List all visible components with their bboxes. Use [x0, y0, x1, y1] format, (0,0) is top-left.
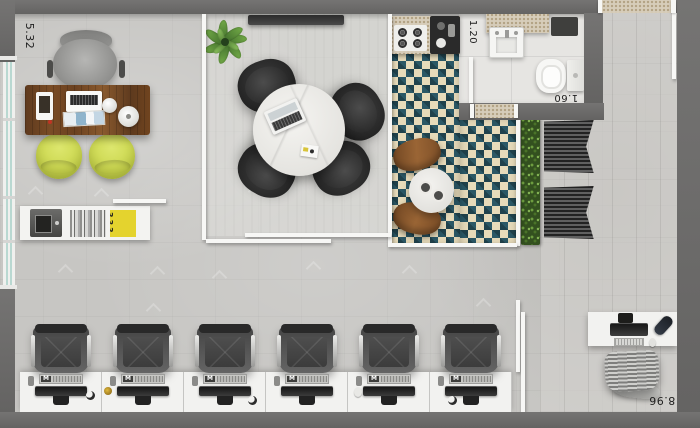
entrance-door-jamb	[671, 0, 676, 13]
wall-left-lower	[0, 286, 15, 412]
task-chair	[33, 327, 89, 373]
desk-lamp-shade	[102, 98, 117, 113]
floor-chevron-mark	[402, 265, 418, 281]
keyboard-logo: M	[369, 376, 379, 382]
keyboard-keys	[381, 376, 409, 382]
chair-armrest	[195, 335, 199, 367]
meeting-room-wall-right	[388, 14, 392, 244]
faucet-handle	[514, 31, 518, 35]
reception-chair	[604, 350, 660, 393]
monitor-stand	[463, 396, 479, 405]
potted-plant	[202, 20, 248, 64]
monitor-stand	[53, 396, 69, 405]
floor-chevron-mark	[94, 188, 110, 204]
coffee-station	[430, 16, 460, 54]
corridor-wall-line	[672, 13, 676, 79]
kitchen-wall-right	[516, 117, 520, 246]
desk-accessory	[104, 387, 112, 395]
keyboard-keys	[299, 376, 327, 382]
keyboard-keys	[463, 376, 491, 382]
keyboard-logo: M	[41, 376, 51, 382]
workstation: M	[102, 327, 184, 412]
partition-wall-line	[113, 199, 166, 203]
task-chair	[443, 327, 499, 373]
keyboard-logo: M	[205, 376, 215, 382]
desk-lamp-base	[118, 106, 139, 127]
task-chair	[279, 327, 335, 373]
laptop-keyboard	[70, 95, 98, 105]
floor-chevron-mark	[28, 186, 44, 202]
desk-accessory	[448, 396, 457, 405]
printer-screen	[35, 215, 52, 233]
bath-mat	[551, 17, 578, 36]
chair-armrest	[87, 335, 91, 367]
notepad	[300, 144, 319, 158]
chair-armrest	[113, 335, 117, 367]
floor-chevron-mark	[150, 266, 166, 282]
magazine-spine-label: 333	[110, 212, 114, 235]
keyboard-logo: M	[123, 376, 133, 382]
monitor-soundbar	[618, 313, 633, 323]
desk-phone	[356, 376, 362, 386]
keyboard-keys	[53, 376, 81, 382]
chair-armrest	[169, 335, 173, 367]
toilet-tank	[567, 60, 584, 91]
window-sill	[0, 56, 17, 60]
bathroom-door-jamb	[470, 104, 474, 118]
desk-phone	[192, 376, 198, 386]
printer	[30, 209, 62, 237]
task-chair	[197, 327, 253, 373]
keyboard: M	[121, 374, 165, 384]
chair-armrest	[359, 335, 363, 367]
monitor	[35, 386, 87, 396]
chair-armrest	[497, 335, 501, 367]
magazine	[63, 110, 106, 127]
burner	[398, 28, 407, 37]
meeting-room-wall-bottom	[245, 233, 391, 237]
keyboard: M	[367, 374, 411, 384]
reception-monitor	[610, 323, 648, 336]
monitor-stand	[217, 396, 233, 405]
chair-armrest	[415, 335, 419, 367]
executive-desk	[25, 85, 150, 135]
bathroom-sink	[489, 27, 524, 58]
desk-accessory	[354, 387, 362, 397]
wall-top	[0, 0, 600, 14]
keyboard-keys	[135, 376, 163, 382]
guest-chair-yellow	[35, 133, 83, 180]
bistro-table	[409, 168, 454, 213]
task-chair	[361, 327, 417, 373]
wall-right	[677, 0, 700, 428]
bathroom-threshold	[475, 104, 514, 118]
keyboard-keys	[217, 376, 245, 382]
toilet	[536, 57, 586, 95]
window-divider	[3, 196, 15, 199]
burner	[413, 28, 422, 37]
floor-chevron-mark	[212, 270, 228, 286]
sink-basin	[496, 37, 517, 53]
entrance-threshold	[602, 0, 671, 13]
plant-center	[221, 38, 229, 46]
wall-left-upper	[0, 0, 15, 62]
printer-button	[55, 221, 59, 225]
floor-plan: 5.32 333	[0, 0, 700, 428]
window-band	[3, 60, 15, 286]
chair-armrest	[47, 60, 53, 78]
keyboard: M	[449, 374, 493, 384]
chair-armrest	[277, 335, 281, 367]
meeting-room-wall-left	[202, 14, 206, 240]
reception-keyboard	[614, 338, 644, 346]
flush-button	[573, 73, 578, 78]
window-divider	[3, 240, 15, 243]
window-sill	[0, 285, 17, 289]
sticky-note	[303, 147, 309, 152]
monitor	[445, 386, 497, 396]
kitchen-tile-floor	[460, 118, 517, 246]
chair-armrest	[251, 335, 255, 367]
floor-chevron-mark	[146, 303, 162, 319]
wall-bottom	[0, 412, 700, 428]
desk-phone	[274, 376, 280, 386]
meeting-room-sliding-door	[206, 239, 331, 243]
coffee-cup	[419, 181, 432, 194]
monitor	[281, 386, 333, 396]
partition-wall-line	[521, 312, 525, 412]
chair-armrest	[441, 335, 445, 367]
keyboard: M	[39, 374, 83, 384]
desk-phone	[28, 376, 34, 386]
desk-phone	[438, 376, 444, 386]
keyboard-logo: M	[287, 376, 297, 382]
magazine-stack: 333	[110, 210, 136, 237]
kettle	[437, 22, 445, 30]
floor-chevron-mark	[58, 264, 74, 280]
bathroom-door-jamb	[514, 104, 518, 118]
desk-phone	[110, 376, 116, 386]
desk-accessory	[86, 391, 95, 400]
monitor	[117, 386, 169, 396]
partition-wall-line	[516, 300, 520, 372]
workstation: M	[348, 327, 430, 412]
dimension-label-bathroom-width: 1.20	[466, 12, 478, 52]
executive-chair	[50, 30, 122, 92]
floor-chevron-mark	[306, 261, 322, 277]
cooktop	[394, 25, 427, 51]
monitor-stand	[381, 396, 397, 405]
toilet-seat	[541, 65, 562, 89]
keyboard: M	[203, 374, 247, 384]
bottle	[448, 24, 455, 37]
desk-accessory	[48, 120, 52, 124]
monitor	[363, 386, 415, 396]
tv-console	[248, 15, 344, 25]
guest-chair-yellow	[88, 133, 136, 180]
floor-chevron-mark	[476, 298, 492, 314]
burner	[398, 39, 407, 48]
chair-backrest	[53, 39, 117, 89]
task-chair	[115, 327, 171, 373]
dimension-label-bathroom-depth: 1.60	[546, 91, 586, 103]
photo-frame	[36, 92, 53, 120]
monitor-stand	[135, 396, 151, 405]
keyboard: M	[285, 374, 329, 384]
toilet-bowl	[536, 59, 566, 93]
grinder	[436, 38, 446, 48]
laptop	[66, 91, 102, 112]
burner	[413, 39, 422, 48]
chair-armrest	[333, 335, 337, 367]
window-divider	[3, 118, 15, 121]
bathroom-wall-left	[469, 57, 473, 105]
coffee-cup	[432, 189, 445, 202]
kitchen-wall-bottom	[388, 243, 517, 247]
wall-bathroom-right	[584, 13, 603, 104]
chair-armrest	[31, 335, 35, 367]
hedge-planter	[521, 118, 540, 245]
pen-cap	[310, 149, 315, 154]
sideboard-shelf: 333	[20, 206, 150, 240]
faucet-handle	[495, 31, 499, 35]
dimension-label-right: 8.96	[642, 394, 682, 406]
mouse	[649, 338, 656, 347]
book-stack	[70, 210, 106, 237]
chair-armrest	[119, 60, 125, 78]
faucet-spout	[505, 30, 509, 38]
workstation: M	[266, 327, 348, 412]
workstation: M	[430, 327, 512, 412]
desk-accessory	[248, 396, 257, 405]
monitor	[199, 386, 251, 396]
monitor-stand	[299, 396, 315, 405]
meeting-table	[253, 84, 345, 176]
dimension-label-left: 5.32	[23, 16, 35, 56]
lamp-switch	[126, 114, 131, 119]
keyboard-logo: M	[451, 376, 461, 382]
frame-screen	[39, 96, 50, 113]
